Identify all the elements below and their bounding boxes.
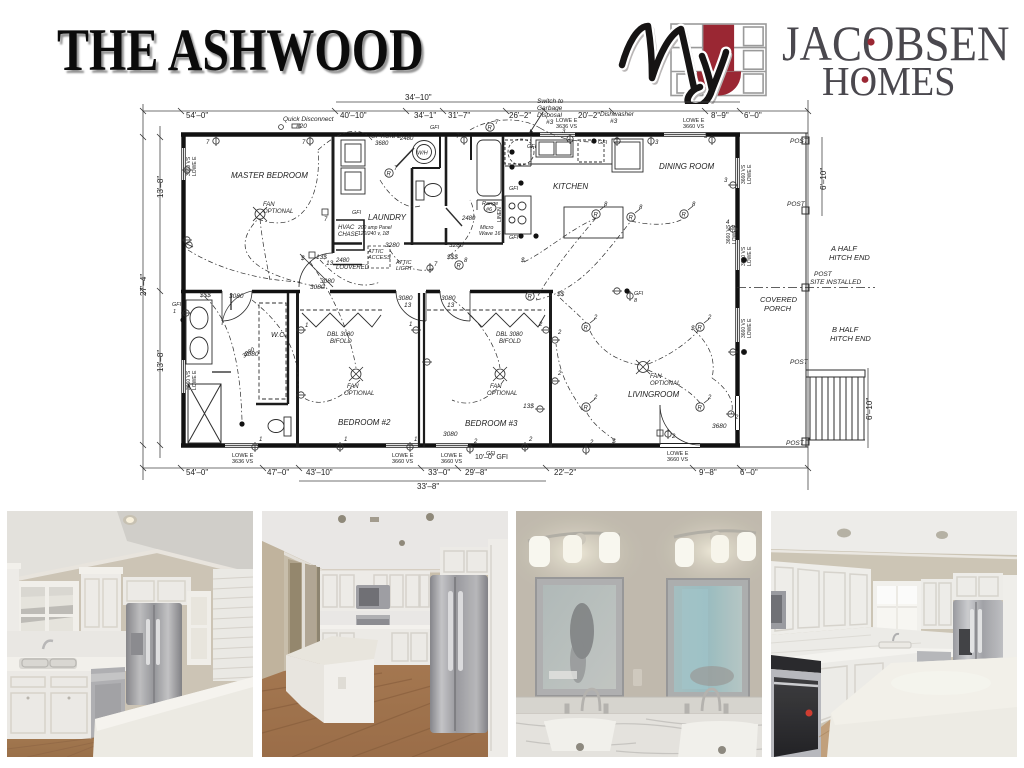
svg-text:3680: 3680 [375, 141, 389, 147]
svg-text:2: 2 [593, 315, 598, 321]
svg-text:GFI: GFI [509, 186, 519, 192]
svg-text:3680: 3680 [712, 423, 727, 430]
svg-text:$: $ [520, 257, 525, 264]
svg-text:13$: 13$ [316, 254, 327, 261]
svg-text:HITCH END: HITCH END [829, 253, 870, 262]
svg-text:1: 1 [305, 323, 308, 329]
svg-text:POST: POST [814, 271, 833, 278]
svg-text:LIGHT: LIGHT [396, 266, 413, 272]
svg-text:13$: 13$ [523, 403, 534, 410]
svg-text:34'–10": 34'–10" [405, 93, 432, 102]
svg-text:3636 VS: 3636 VS [232, 459, 253, 465]
svg-text:2: 2 [557, 330, 562, 336]
svg-text:3660 VS: 3660 VS [667, 457, 688, 463]
svg-text:A HALF: A HALF [830, 244, 857, 253]
svg-text:POST: POST [790, 359, 809, 366]
svg-text:GFI: GFI [598, 140, 608, 146]
svg-text:CHASE: CHASE [338, 232, 360, 238]
svg-text:LOWE E: LOWE E [747, 246, 753, 266]
svg-text:1: 1 [414, 437, 417, 443]
svg-text:7: 7 [206, 140, 210, 146]
svg-text:GFI: GFI [172, 302, 182, 308]
svg-text:2: 2 [589, 440, 594, 446]
svg-text:13: 13 [404, 302, 412, 309]
svg-text:HVAC: HVAC [338, 225, 355, 231]
svg-text:54'–0": 54'–0" [186, 468, 208, 477]
svg-text:3080: 3080 [398, 295, 413, 302]
svg-text:31'–7": 31'–7" [448, 111, 470, 120]
svg-text:8: 8 [634, 298, 638, 304]
svg-text:3080: 3080 [229, 293, 244, 300]
svg-text:7: 7 [394, 166, 398, 172]
svg-text:40'–10": 40'–10" [340, 111, 367, 120]
svg-text:POST: POST [787, 201, 806, 208]
svg-text:54'–0": 54'–0" [186, 111, 208, 120]
svg-text:ACCESS: ACCESS [367, 255, 391, 261]
svg-text:OPTIONAL: OPTIONAL [371, 134, 401, 140]
svg-text:1: 1 [259, 437, 262, 443]
svg-text:R: R [698, 406, 703, 412]
svg-text:Quick Disconnect: Quick Disconnect [283, 116, 335, 123]
svg-text:DBL 3080: DBL 3080 [327, 332, 354, 338]
svg-text:#3: #3 [546, 119, 554, 126]
svg-text:3: 3 [724, 178, 728, 184]
svg-text:2: 2 [538, 322, 543, 328]
svg-text:3280: 3280 [385, 242, 400, 249]
svg-text:BIFOLD: BIFOLD [499, 339, 521, 345]
svg-text:Dishwasher: Dishwasher [600, 111, 635, 118]
svg-text:POST: POST [790, 138, 809, 145]
svg-text:R: R [387, 172, 392, 178]
svg-text:R: R [584, 406, 589, 412]
svg-text:3660 VS: 3660 VS [683, 124, 704, 130]
svg-text:BEDROOM #2: BEDROOM #2 [338, 418, 391, 427]
svg-text:13: 13 [447, 302, 455, 309]
svg-text:1: 1 [344, 437, 347, 443]
svg-text:13'–8": 13'–8" [156, 350, 165, 372]
svg-text:LIVINGROOM: LIVINGROOM [628, 390, 679, 399]
svg-text:2: 2 [671, 434, 676, 440]
svg-text:POST: POST [786, 440, 805, 447]
svg-text:R: R [584, 326, 589, 332]
svg-text:120/240 v, 1Ø: 120/240 v, 1Ø [358, 231, 390, 237]
svg-text:6'–0": 6'–0" [740, 468, 758, 477]
svg-text:R: R [457, 264, 462, 270]
svg-text:B HALF: B HALF [832, 325, 859, 334]
svg-text:6'–0": 6'–0" [744, 111, 762, 120]
svg-text:33'–0": 33'–0" [428, 468, 450, 477]
svg-text:3636 VS: 3636 VS [556, 124, 577, 130]
svg-text:PORCH: PORCH [764, 304, 792, 313]
svg-text:$$: $$ [556, 291, 565, 298]
svg-text:$: $ [690, 325, 695, 332]
svg-text:DBL 3080: DBL 3080 [496, 332, 523, 338]
svg-text:7: 7 [434, 262, 438, 268]
svg-text:33'–8": 33'–8" [417, 482, 439, 490]
svg-text:R: R [528, 295, 533, 301]
svg-text:#3: #3 [610, 118, 618, 125]
svg-text:GFI: GFI [509, 235, 519, 241]
svg-text:3660 VS: 3660 VS [392, 459, 413, 465]
svg-text:Garbage: Garbage [537, 105, 563, 112]
svg-text:MASTER BEDROOM: MASTER BEDROOM [231, 171, 308, 180]
svg-text:13'–8": 13'–8" [156, 176, 165, 198]
svg-text:FAN: FAN [263, 202, 275, 208]
svg-text:2: 2 [557, 371, 562, 377]
svg-text:COVERED: COVERED [760, 295, 798, 304]
svg-text:3660 VS: 3660 VS [441, 459, 462, 465]
svg-text:6'–10": 6'–10" [865, 398, 874, 420]
svg-text:GFI: GFI [352, 210, 362, 216]
svg-text:R: R [594, 213, 599, 219]
svg-text:3280: 3280 [449, 242, 464, 249]
svg-text:3080: 3080 [320, 278, 335, 285]
svg-text:#6: #6 [486, 207, 493, 213]
svg-text:3: 3 [655, 140, 659, 146]
svg-text:2480: 2480 [399, 136, 414, 142]
svg-text:2: 2 [707, 395, 712, 401]
svg-text:2: 2 [473, 439, 478, 445]
svg-text:2: 2 [734, 415, 739, 421]
svg-text:R: R [629, 216, 634, 222]
svg-text:8: 8 [639, 205, 643, 211]
svg-text:Wave 16: Wave 16 [479, 231, 502, 237]
svg-text:SITE INSTALLED: SITE INSTALLED [810, 279, 861, 286]
svg-text:26'–2": 26'–2" [509, 111, 531, 120]
svg-text:7: 7 [324, 217, 328, 223]
svg-text:1: 1 [409, 322, 412, 328]
svg-text:DINING ROOM: DINING ROOM [659, 162, 714, 171]
svg-text:OPTIONAL: OPTIONAL [487, 391, 517, 397]
svg-text:BIFOLD: BIFOLD [330, 339, 352, 345]
svg-text:2480: 2480 [335, 258, 350, 264]
svg-text:22'–2": 22'–2" [554, 468, 576, 477]
svg-text:9'–8": 9'–8" [699, 468, 717, 477]
svg-text:FAN: FAN [347, 384, 359, 390]
svg-text:R: R [698, 326, 703, 332]
svg-text:2: 2 [707, 315, 712, 321]
svg-text:2: 2 [593, 395, 598, 401]
svg-text:R: R [682, 213, 687, 219]
svg-text:3080: 3080 [244, 351, 259, 358]
svg-text:GFI: GFI [634, 291, 644, 297]
svg-text:LOWE E: LOWE E [747, 164, 753, 184]
svg-text:Switch to: Switch to [537, 98, 564, 105]
svg-text:FAN: FAN [650, 374, 662, 380]
svg-text:8: 8 [692, 202, 696, 208]
svg-text:29'–8": 29'–8" [465, 468, 487, 477]
svg-text:OPTIONAL: OPTIONAL [263, 209, 293, 215]
svg-text:47'–0": 47'–0" [267, 468, 289, 477]
svg-text:2: 2 [528, 437, 533, 443]
svg-text:20'–2": 20'–2" [578, 111, 600, 120]
svg-text:7: 7 [302, 140, 306, 146]
svg-text:8'–9": 8'–9" [711, 111, 729, 120]
svg-text:GFI: GFI [486, 451, 496, 457]
svg-text:1: 1 [173, 309, 176, 315]
svg-text:BEDROOM #3: BEDROOM #3 [465, 419, 518, 428]
svg-text:13: 13 [326, 260, 334, 267]
svg-text:27'–4": 27'–4" [139, 274, 148, 296]
svg-text:OPTIONAL: OPTIONAL [344, 391, 374, 397]
svg-text:W.C.: W.C. [271, 332, 286, 339]
svg-text:HITCH END: HITCH END [830, 334, 871, 343]
svg-text:3080: 3080 [441, 295, 456, 302]
svg-text:GFI: GFI [430, 125, 440, 131]
svg-text:$: $ [300, 255, 305, 262]
svg-text:GFI: GFI [527, 144, 537, 150]
svg-text:R: R [488, 126, 493, 132]
svg-text:8: 8 [464, 258, 468, 264]
svg-text:LOWE E: LOWE E [747, 318, 753, 338]
svg-text:LOWE E: LOWE E [192, 370, 198, 390]
svg-text:LOUVERED: LOUVERED [336, 265, 370, 271]
svg-text:$$$: $$$ [446, 254, 458, 261]
svg-text:W/H: W/H [417, 151, 428, 157]
svg-text:LAUNDRY: LAUNDRY [368, 213, 407, 222]
svg-text:6'–10": 6'–10" [819, 168, 828, 190]
svg-text:43'–10": 43'–10" [306, 468, 333, 477]
svg-text:LOWE E: LOWE E [192, 156, 198, 176]
svg-text:3080: 3080 [443, 431, 458, 438]
svg-text:34'–1": 34'–1" [414, 111, 436, 120]
svg-text:LINEN: LINEN [497, 207, 503, 222]
svg-text:$$$: $$$ [199, 292, 211, 299]
svg-text:KITCHEN: KITCHEN [553, 182, 588, 191]
